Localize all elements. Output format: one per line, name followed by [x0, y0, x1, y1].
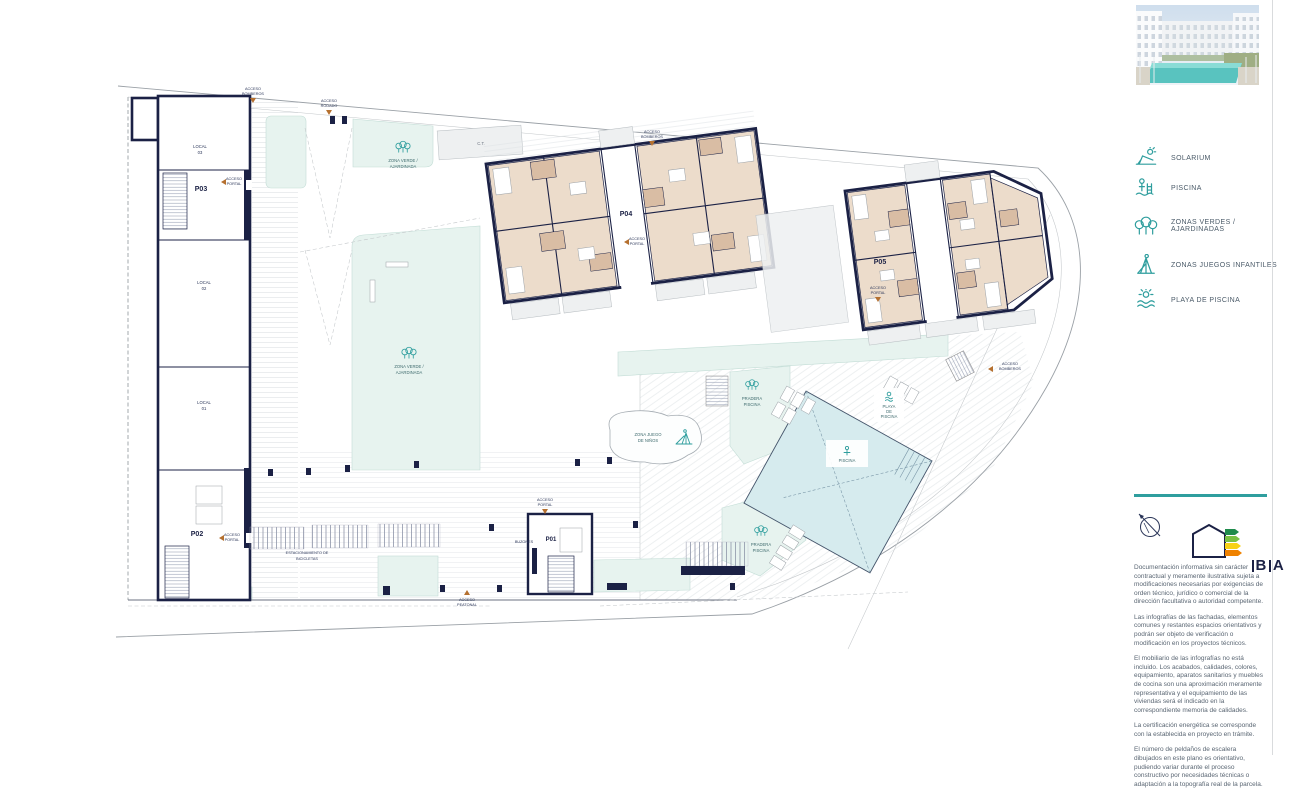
- svg-text:ACCESO: ACCESO: [459, 598, 475, 602]
- svg-text:PORTAL: PORTAL: [225, 538, 240, 542]
- svg-text:ACCESO: ACCESO: [870, 286, 886, 290]
- label-p03: P03: [195, 186, 208, 193]
- svg-text:LOCAL: LOCAL: [197, 280, 211, 285]
- piscina-icon: [1134, 176, 1158, 200]
- svg-text:02: 02: [202, 286, 207, 291]
- label-p01: P01: [546, 537, 557, 543]
- disclaimer-paragraph: Las infografías de las fachadas, element…: [1134, 614, 1264, 648]
- energy-letter-a: A: [1273, 557, 1285, 574]
- disclaimer-paragraph: El número de peldaños de escalera dibuja…: [1134, 746, 1264, 789]
- legend-item-solarium: SOLARIUM: [1134, 146, 1211, 170]
- label-zona-verde-2: ZONA VERDE / AJARDINADA: [394, 364, 424, 375]
- label-pradera-2: PRADERA PISCINA: [751, 542, 771, 553]
- svg-text:PRADERA: PRADERA: [742, 396, 762, 401]
- footer: BA Documentación informativa sin carácte…: [1134, 494, 1268, 497]
- legend-item-zonas-verdes: ZONAS VERDES / AJARDINADAS: [1134, 214, 1284, 238]
- svg-text:01: 01: [202, 406, 207, 411]
- building-left: [132, 96, 252, 600]
- legend-label: SOLARIUM: [1171, 155, 1211, 162]
- energy-arrows: [1225, 529, 1242, 556]
- zonas-verdes-icon: [1134, 214, 1158, 238]
- svg-text:ACCESO: ACCESO: [224, 533, 240, 537]
- disclaimer-paragraph: Documentación informativa sin carácter c…: [1134, 564, 1264, 607]
- legend-item-juegos: ZONAS JUEGOS INFANTILES: [1134, 253, 1277, 277]
- site-plan: C.T. P03 P02 LOCAL 03 LOCAL 02 LOCAL 01: [0, 0, 1100, 755]
- portal-p01: [528, 514, 592, 594]
- access-rodado: ACCESO RODADO: [321, 99, 338, 115]
- svg-text:ACCESO: ACCESO: [245, 87, 261, 91]
- svg-text:ZONA VERDE /: ZONA VERDE /: [388, 158, 418, 163]
- svg-text:PISCINA: PISCINA: [881, 414, 898, 419]
- thumbnail-photo: [1136, 5, 1259, 85]
- svg-text:ACCESO: ACCESO: [1002, 362, 1018, 366]
- compass-icon: [1134, 507, 1168, 545]
- svg-text:PORTAL: PORTAL: [871, 291, 886, 295]
- svg-text:PEATONAL: PEATONAL: [457, 603, 477, 607]
- label-zona-juegos: ZONA JUEGO DE NIÑOS: [635, 432, 663, 443]
- label-p02: P02: [191, 531, 204, 538]
- svg-text:ACCESO: ACCESO: [226, 177, 242, 181]
- label-buzones: BUZONES: [515, 540, 534, 544]
- label-p04: P04: [620, 211, 633, 218]
- label-zona-verde-1: ZONA VERDE / AJARDINADA: [388, 158, 418, 169]
- svg-text:ZONA VERDE /: ZONA VERDE /: [394, 364, 424, 369]
- svg-text:AJARDINADA: AJARDINADA: [390, 164, 417, 169]
- disclaimer-paragraph: La certificación energética se correspon…: [1134, 722, 1264, 739]
- svg-text:PORTAL: PORTAL: [630, 242, 645, 246]
- svg-text:DE NIÑOS: DE NIÑOS: [638, 438, 658, 443]
- legend-item-piscina: PISCINA: [1134, 176, 1202, 200]
- svg-text:03: 03: [198, 150, 203, 155]
- legend-label: PISCINA: [1171, 185, 1202, 192]
- label-playa-piscina: PLAYA DE PISCINA: [874, 388, 904, 422]
- svg-text:PISCINA: PISCINA: [839, 458, 856, 463]
- legend-item-playa: PLAYA DE PISCINA: [1134, 288, 1240, 312]
- sidebar-divider: [1272, 0, 1273, 755]
- svg-text:ACCESO: ACCESO: [629, 237, 645, 241]
- svg-text:ESTACIONAMIENTO DE: ESTACIONAMIENTO DE: [286, 551, 329, 555]
- svg-text:PRADERA: PRADERA: [751, 542, 771, 547]
- central-patio: [756, 205, 849, 332]
- disclaimer-paragraph: El mobiliario de las infografías no está…: [1134, 655, 1264, 715]
- svg-text:AJARDINADA: AJARDINADA: [396, 370, 423, 375]
- svg-text:LOCAL: LOCAL: [193, 144, 207, 149]
- svg-text:LOCAL: LOCAL: [197, 400, 211, 405]
- legend-label: PLAYA DE PISCINA: [1171, 297, 1240, 304]
- svg-text:PORTAL: PORTAL: [227, 182, 242, 186]
- svg-text:ACCESO: ACCESO: [644, 130, 660, 134]
- label-p05: P05: [874, 259, 887, 266]
- solarium-icon: [1134, 146, 1158, 170]
- svg-text:BICICLETAS: BICICLETAS: [296, 557, 318, 561]
- svg-text:BOMBEROS: BOMBEROS: [999, 367, 1021, 371]
- svg-text:BOMBEROS: BOMBEROS: [242, 92, 264, 96]
- label-pradera-1: PRADERA PISCINA: [742, 396, 762, 407]
- svg-text:ACCESO: ACCESO: [321, 99, 337, 103]
- teal-rule: [1134, 494, 1267, 497]
- label-piscina: PISCINA: [826, 440, 868, 467]
- block-p05: [843, 148, 1058, 346]
- svg-text:ACCESO: ACCESO: [537, 498, 553, 502]
- legend-label: ZONAS VERDES / AJARDINADAS: [1171, 219, 1284, 233]
- disclaimer: Documentación informativa sin carácter c…: [1134, 564, 1264, 796]
- svg-text:ZONA JUEGO: ZONA JUEGO: [635, 432, 663, 437]
- svg-text:RODADO: RODADO: [321, 104, 338, 108]
- svg-text:PORTAL: PORTAL: [538, 503, 553, 507]
- energy-rating-logo: BA: [1189, 521, 1245, 566]
- playa-piscina-icon: [1134, 288, 1158, 312]
- legend-label: ZONAS JUEGOS INFANTILES: [1171, 262, 1277, 269]
- svg-text:BOMBEROS: BOMBEROS: [641, 135, 663, 139]
- svg-text:PISCINA: PISCINA: [753, 548, 770, 553]
- svg-text:PISCINA: PISCINA: [744, 402, 761, 407]
- juegos-infantiles-icon: [1134, 253, 1158, 277]
- sidebar: SOLARIUM PISCINA ZONAS VERDES / AJARDINA…: [1100, 0, 1290, 755]
